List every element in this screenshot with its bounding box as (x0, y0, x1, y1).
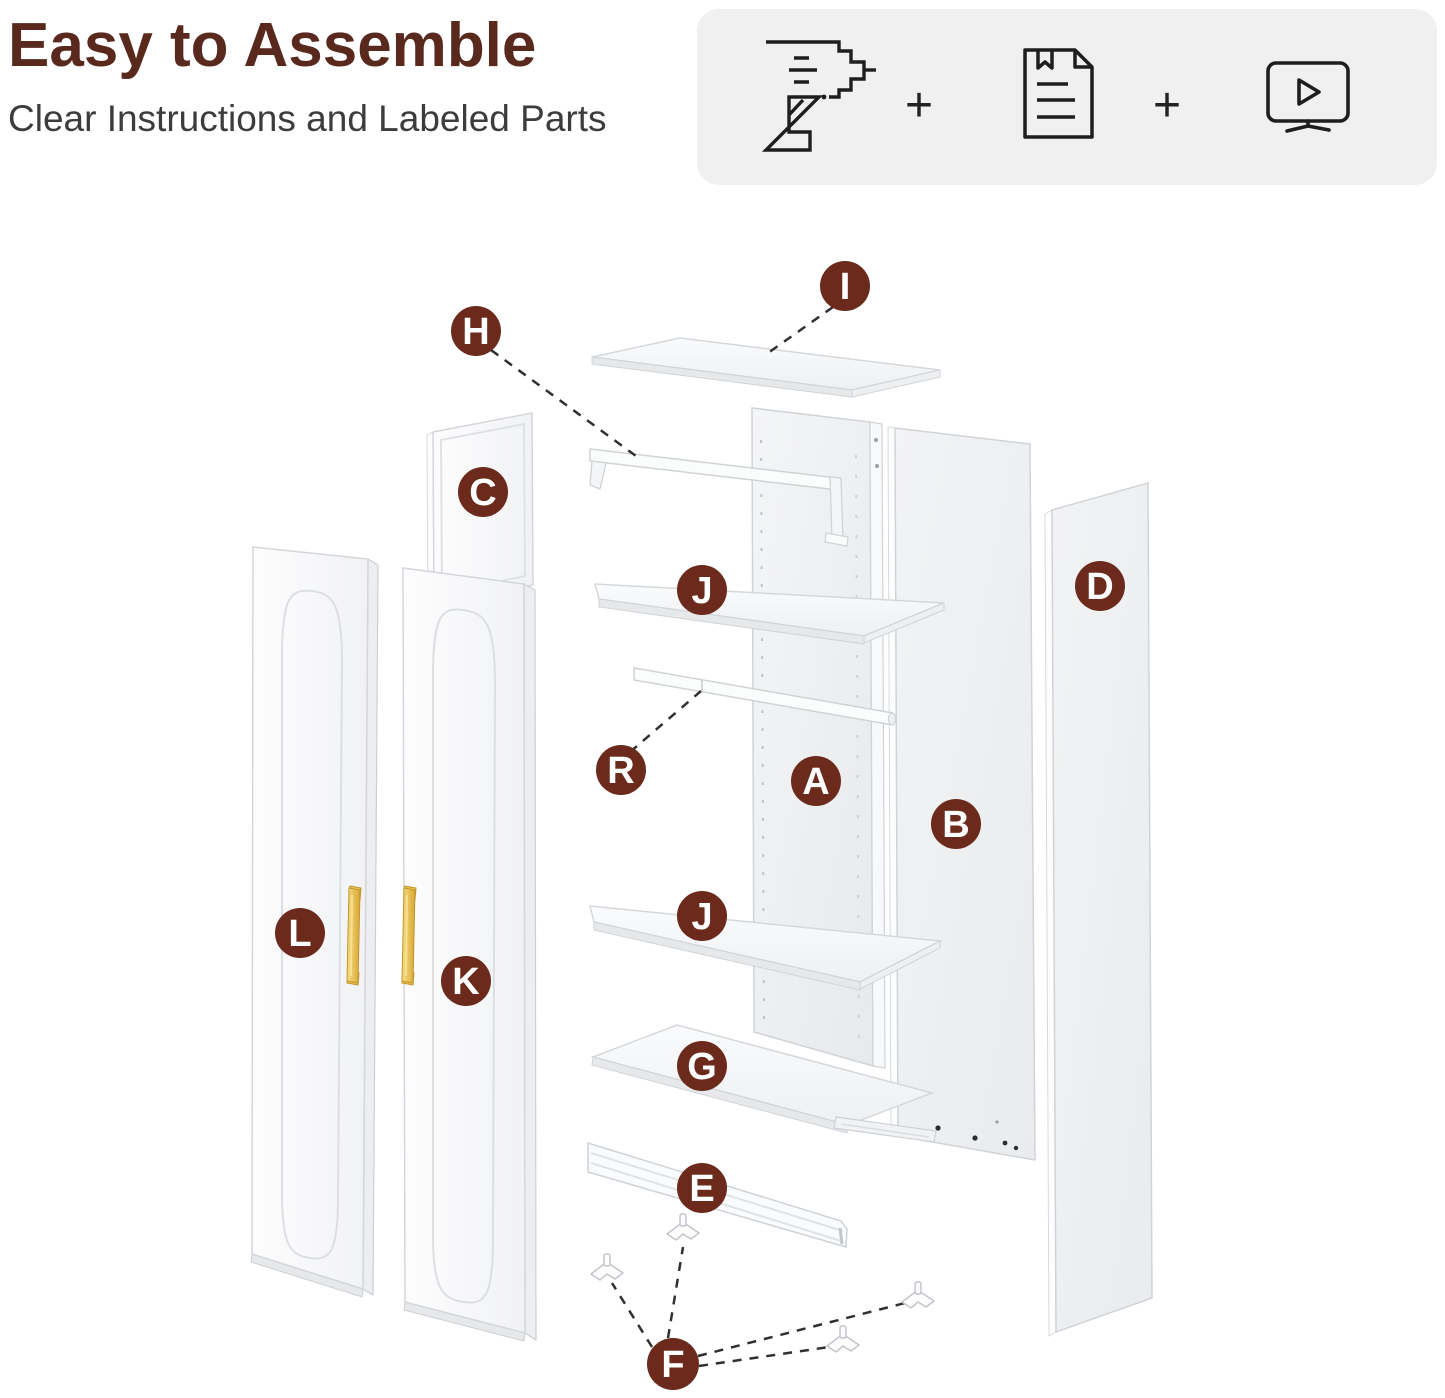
label-letter: F (661, 1344, 684, 1386)
part-label-r: R (596, 745, 646, 795)
part-label-h: H (451, 306, 501, 356)
door-k (402, 568, 536, 1341)
label-letter: D (1086, 566, 1113, 608)
label-letter: J (691, 570, 712, 612)
part-label-e: E (677, 1163, 727, 1213)
exploded-wardrobe-diagram: I H C J D R A B (0, 0, 1445, 1398)
label-letter: I (840, 266, 851, 308)
label-letter: C (469, 472, 496, 514)
part-label-a: A (791, 756, 841, 806)
label-letter: K (452, 961, 480, 1003)
label-letter: R (607, 750, 634, 792)
label-letter: L (288, 913, 311, 955)
label-letter: H (462, 311, 489, 353)
label-letter: E (689, 1168, 714, 1210)
label-letter: B (942, 804, 969, 846)
panel-b (888, 427, 1035, 1160)
label-letter: A (802, 761, 829, 803)
part-label-l: L (275, 908, 325, 958)
product-infographic: Easy to Assemble Clear Instructions and … (0, 0, 1445, 1398)
top-panel-i (592, 338, 940, 397)
part-label-f: F (647, 1338, 699, 1390)
part-label-g: G (677, 1041, 727, 1091)
part-label-j-upper: J (677, 565, 727, 615)
part-label-b: B (931, 799, 981, 849)
part-label-k: K (441, 956, 491, 1006)
part-label-j-lower: J (677, 891, 727, 941)
part-label-i: I (820, 261, 870, 311)
label-letter: G (687, 1046, 717, 1088)
label-letter: J (691, 896, 712, 938)
part-label-c: C (458, 467, 508, 517)
part-label-d: D (1075, 561, 1125, 611)
